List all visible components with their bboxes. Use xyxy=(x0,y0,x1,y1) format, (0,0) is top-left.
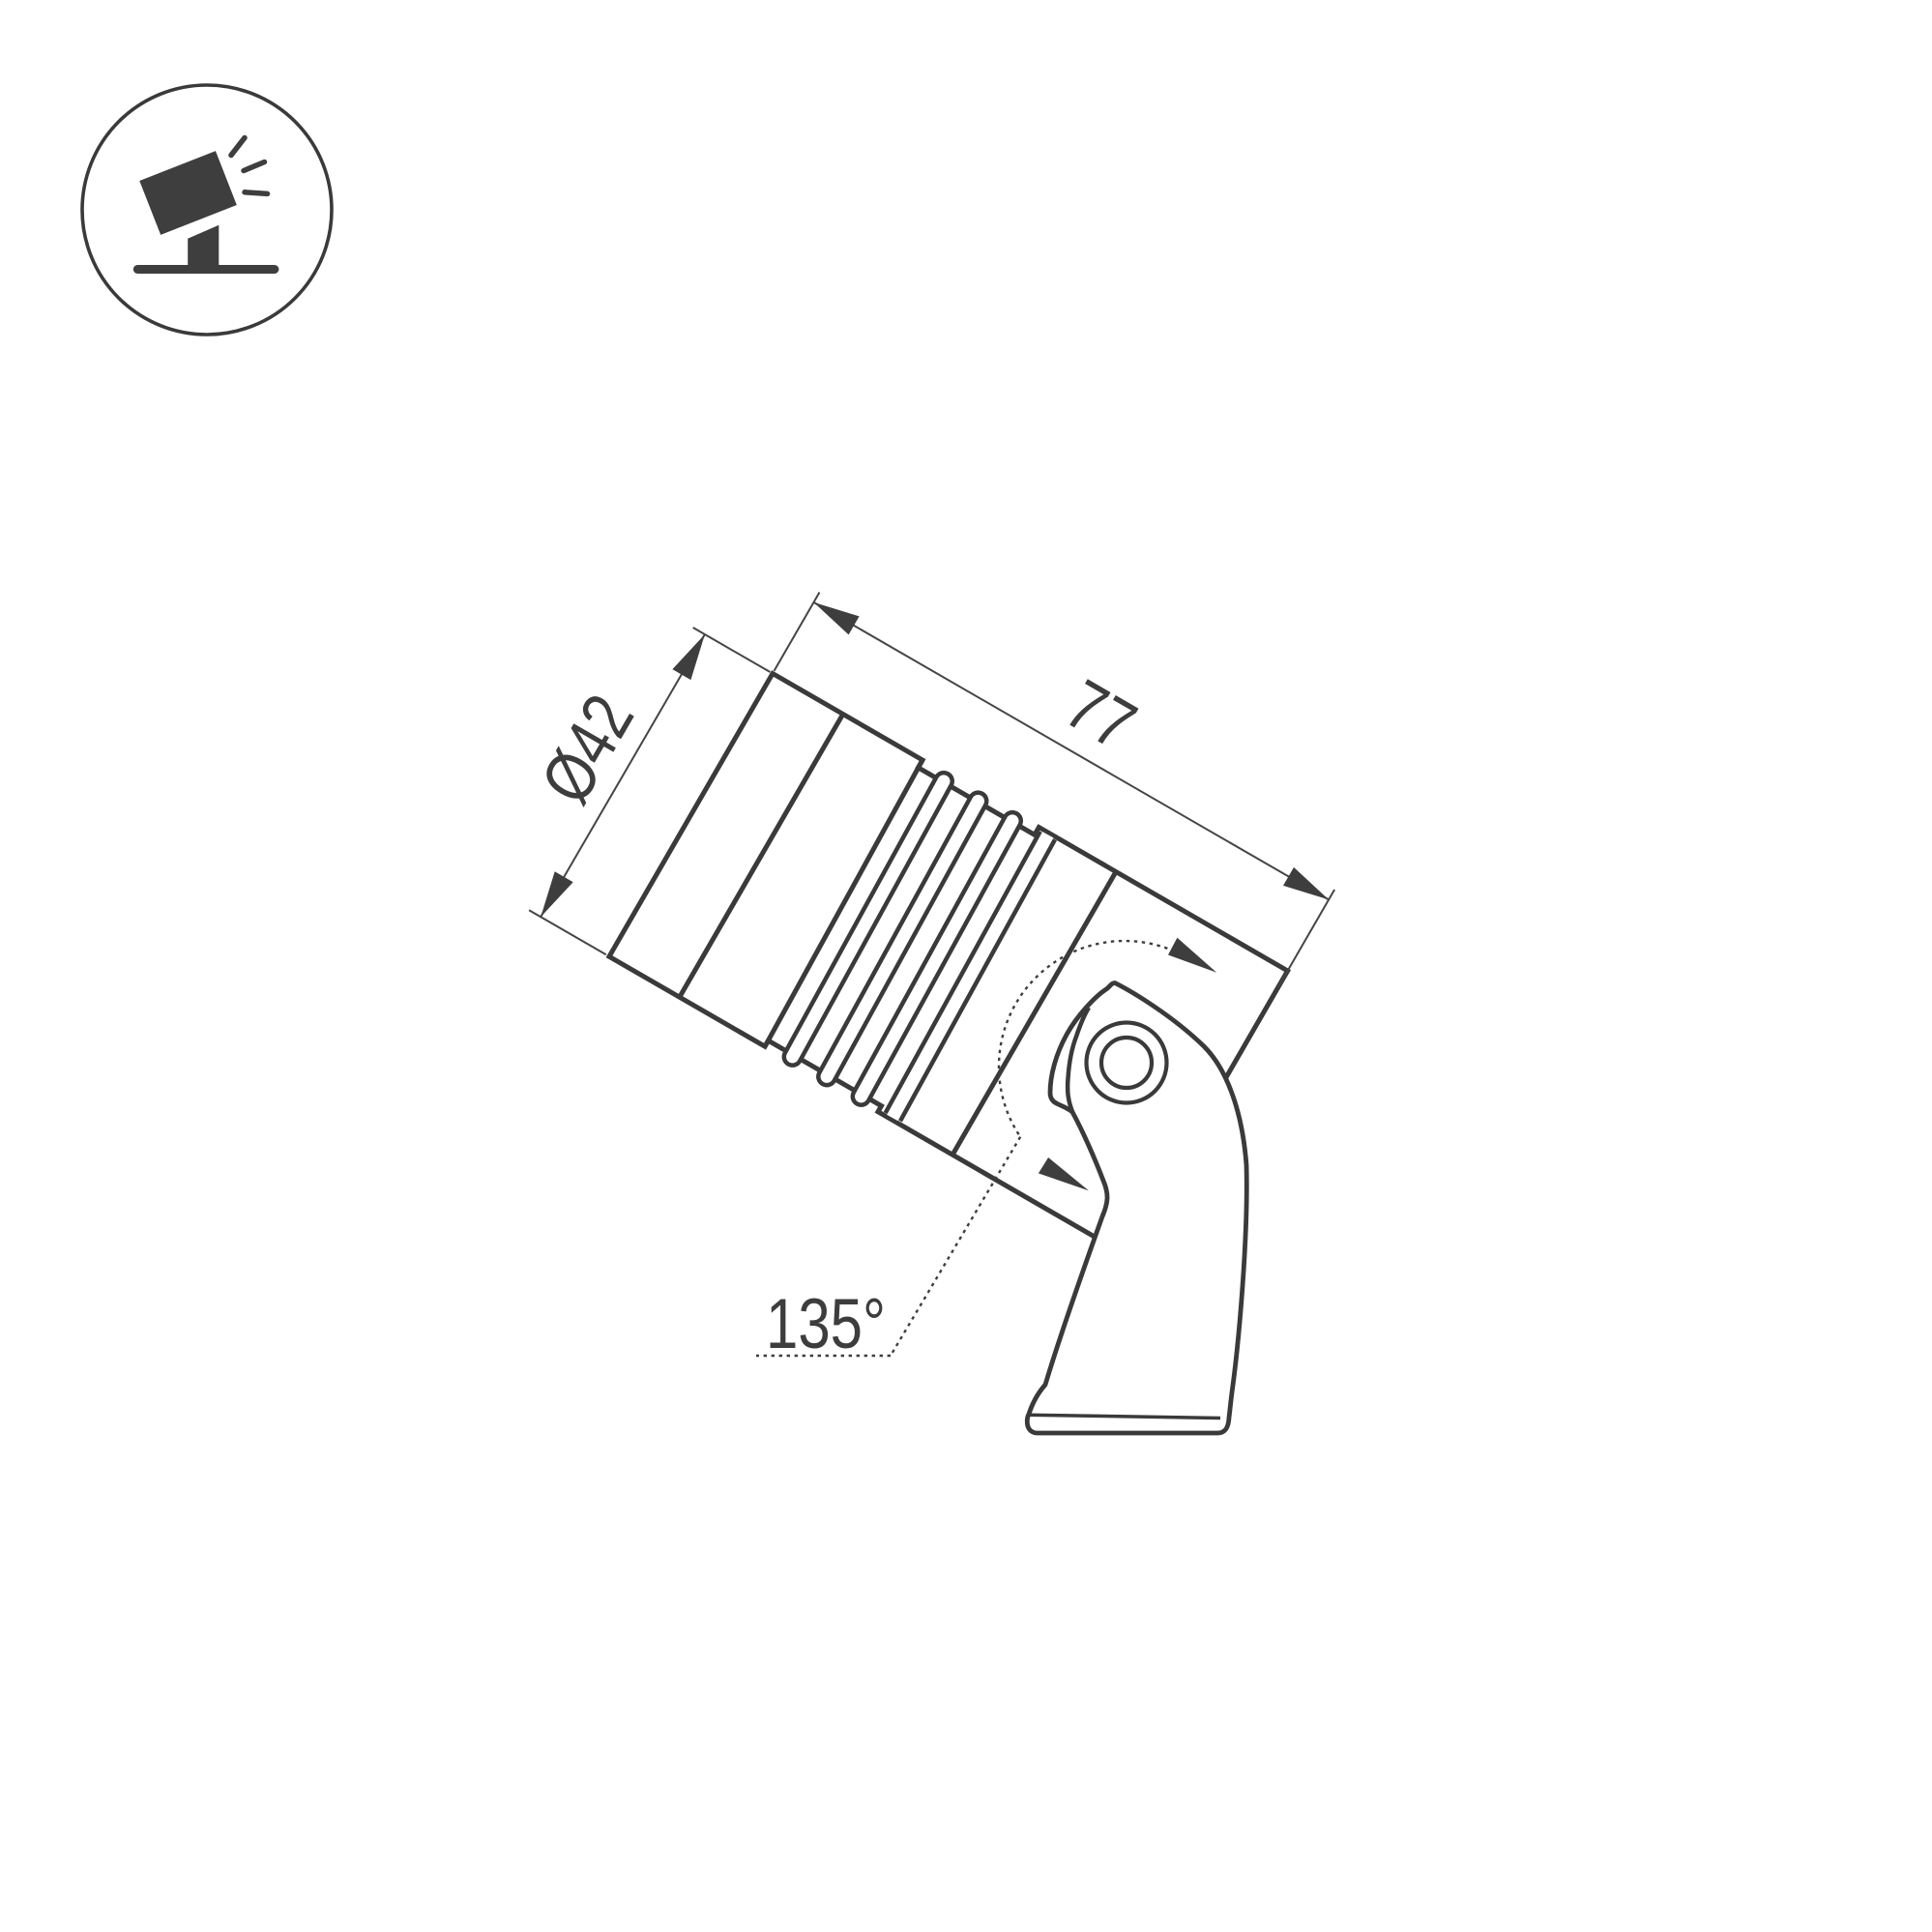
svg-text:135°: 135° xyxy=(766,1285,886,1363)
